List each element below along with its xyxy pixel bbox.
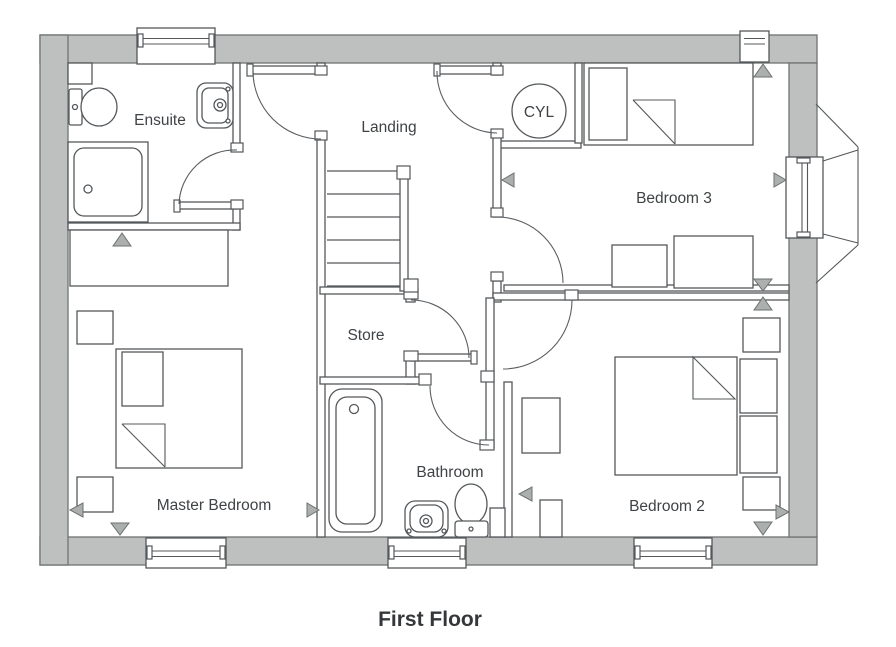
door-arc-bathroom [430,386,489,445]
stairs [327,166,418,292]
bathtub [329,389,382,532]
window-master-bottom [146,538,226,568]
window-bedroom3-top [740,31,769,62]
master-wardrobe [70,230,228,286]
bathroom-sink [405,501,448,537]
bedroom3-pillow [589,68,627,140]
cylinder-label: CYL [524,104,555,121]
stairs-newel-top [397,166,410,179]
door-arc-bedroom3 [497,217,563,283]
ensuite-sink [197,83,233,128]
room-label-store: Store [347,327,384,344]
bedroom3-desk [674,236,753,288]
door-arc-ensuite [179,150,237,204]
room-label-ensuite: Ensuite [134,112,186,129]
room-label-bedroom3: Bedroom 3 [636,190,712,207]
bedroom2-pillow-top [740,359,777,413]
corner-duct [68,63,92,84]
floor-plan-page: CYL [0,0,896,642]
room-label-bedroom2: Bedroom 2 [629,498,705,515]
door-arc-cylinder-cupboard [437,71,497,133]
dimension-arrow-right [774,173,786,187]
door-arc-store [411,300,469,358]
dimension-arrow-left [519,487,532,501]
room-label-bathroom: Bathroom [416,464,483,481]
bedroom3-furniture [584,63,753,288]
bedroom2-pillow-bottom [740,416,777,473]
master-nightstand-top [77,311,113,344]
dimension-arrow-down [754,522,772,535]
bathroom-toilet [455,484,488,537]
stairs-newel-bottom [404,279,418,292]
window-bedroom2-bottom [634,538,712,568]
door-arc-bedroom2 [503,300,572,369]
page-title: First Floor [378,608,482,631]
ensuite-shower [68,142,148,222]
floor-plan-drawing: CYL [0,0,896,642]
master-pillow [122,352,163,406]
dimension-arrow-down [111,523,129,535]
bedroom2-corner-box [540,500,562,537]
dimension-arrow-right [776,505,789,519]
room-label-master-bedroom: Master Bedroom [157,497,272,514]
room-label-landing: Landing [361,119,416,136]
bedroom2-bed [615,357,737,475]
hot-water-cylinder: CYL [512,84,566,138]
bedroom2-wardrobe [522,398,560,453]
bedroom2-nightstand-bottom [743,477,780,510]
ensuite-toilet [69,88,117,126]
window-bathroom-bottom [388,538,466,568]
bedroom3-chest [612,245,667,287]
dimension-arrow-up [754,64,772,77]
stairs-handrail [400,169,408,291]
door-arc-landing [253,71,321,139]
dimension-arrow-left [502,173,514,187]
window-ensuite-top [137,28,215,64]
master-bedroom-furniture [70,230,242,512]
bedroom2-nightstand-top [743,318,780,352]
